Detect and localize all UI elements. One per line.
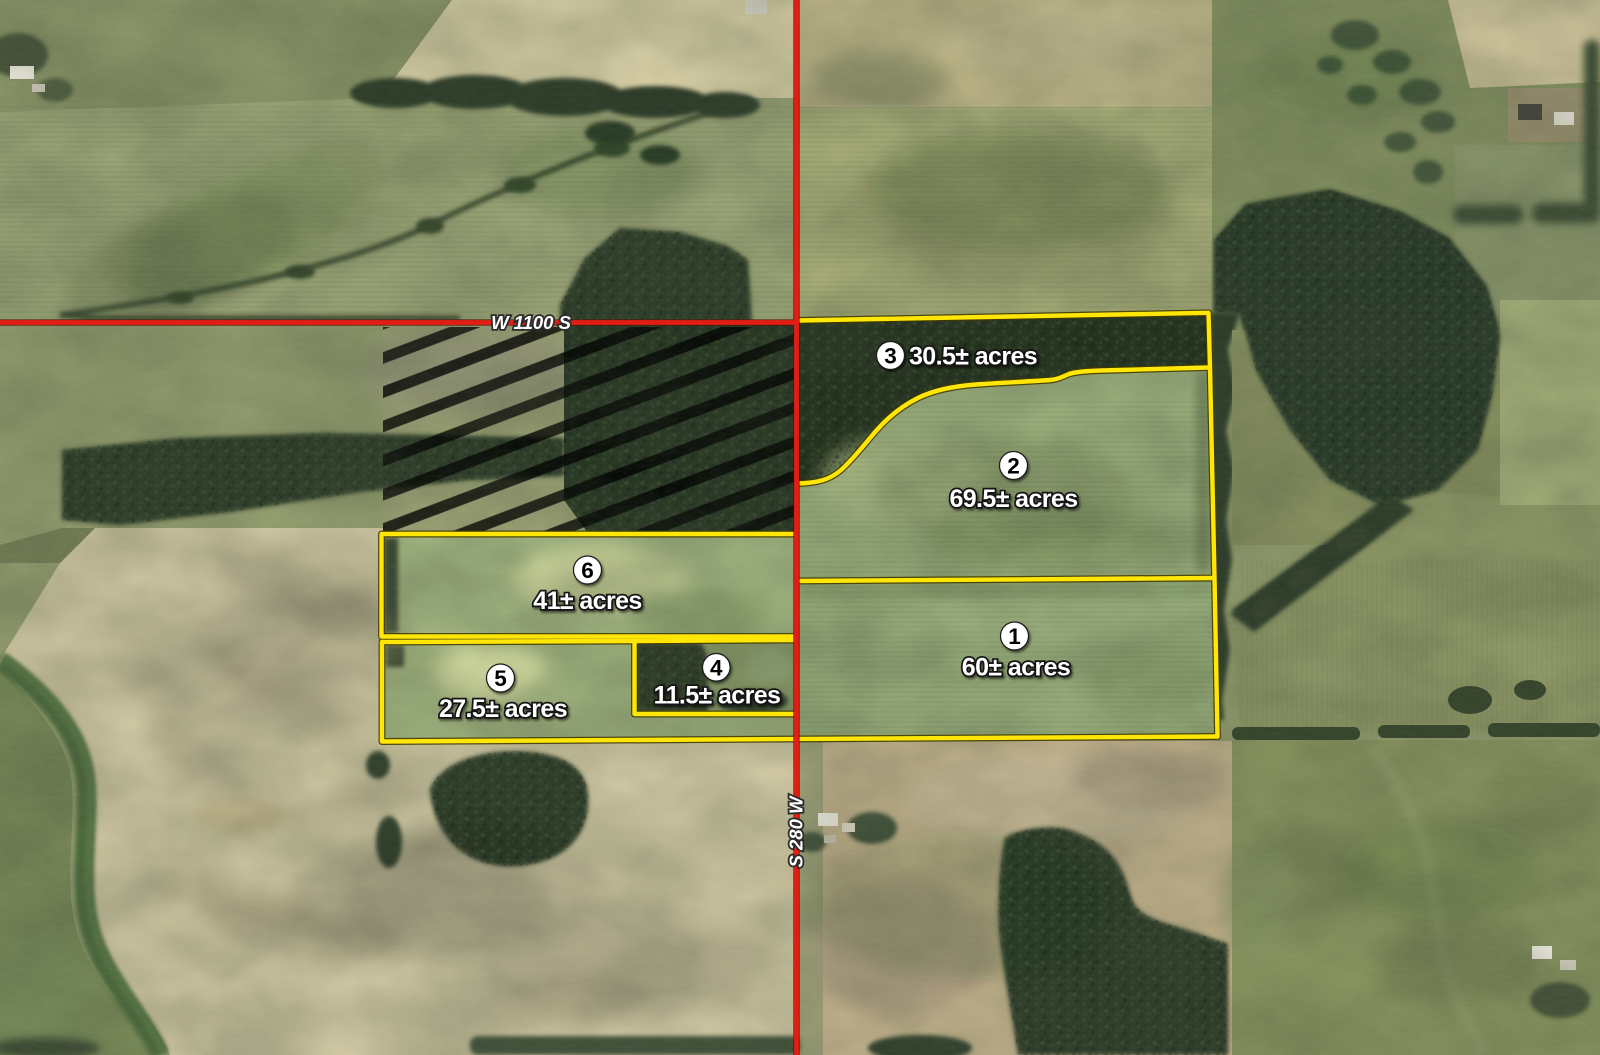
svg-text:5: 5 [494,666,507,691]
svg-text:W 1100 S: W 1100 S [491,312,572,333]
svg-text:6: 6 [581,558,594,583]
svg-text:30.5± acres: 30.5± acres [909,343,1037,371]
svg-text:69.5± acres: 69.5± acres [949,485,1077,513]
svg-text:1: 1 [1008,624,1021,649]
svg-text:4: 4 [710,655,723,680]
svg-text:2: 2 [1007,454,1020,479]
svg-text:3: 3 [884,344,897,369]
svg-text:41± acres: 41± acres [533,587,641,615]
svg-text:27.5± acres: 27.5± acres [439,695,567,723]
svg-text:60± acres: 60± acres [962,654,1070,682]
svg-text:11.5± acres: 11.5± acres [654,682,781,710]
svg-text:S 280 W: S 280 W [786,795,807,867]
